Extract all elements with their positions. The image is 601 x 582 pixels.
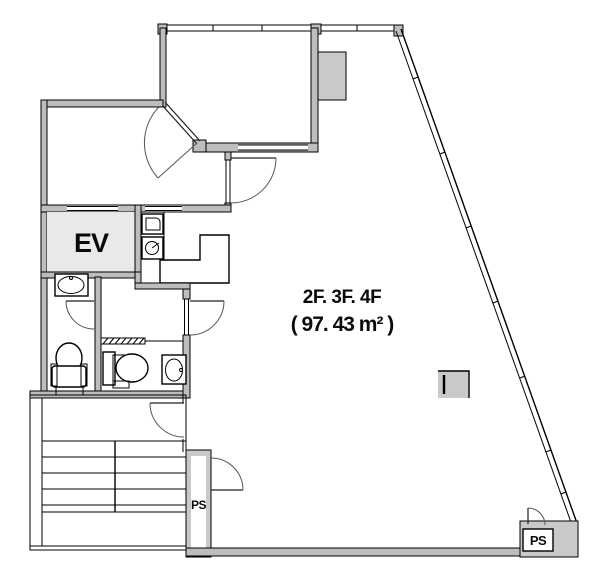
stair-door bbox=[150, 403, 184, 437]
top-window-wall bbox=[158, 24, 403, 36]
floor-plan: EV bbox=[0, 0, 601, 582]
floor-plan-svg: EV bbox=[0, 0, 601, 582]
hand-sink bbox=[162, 355, 186, 384]
pipe-shaft-1: PS bbox=[186, 450, 243, 557]
main-room-label: 2F. 3F. 4F ( 97. 43 m² ) bbox=[291, 287, 394, 336]
wash-basin bbox=[55, 274, 88, 296]
interior-window-2 bbox=[145, 206, 182, 212]
utility-closet bbox=[142, 212, 164, 260]
pipe-space-2-label: PS bbox=[530, 533, 547, 548]
area-text: ( 97. 43 m² ) bbox=[291, 313, 394, 336]
sanitary-block bbox=[30, 274, 224, 398]
room-door bbox=[231, 158, 276, 203]
diagonal-wall bbox=[396, 29, 578, 528]
floors-text: 2F. 3F. 4F bbox=[303, 287, 381, 308]
vestibule-door bbox=[66, 301, 94, 329]
lower-wall-window bbox=[238, 145, 308, 151]
stair-treads bbox=[42, 441, 186, 512]
pipe-space-1-label: PS bbox=[191, 498, 207, 512]
stairwell bbox=[30, 395, 186, 550]
column bbox=[438, 371, 469, 398]
doorway-jamb-2 bbox=[185, 299, 189, 335]
bottom-wall bbox=[186, 548, 578, 556]
folding-partition bbox=[101, 338, 183, 344]
shaft-door-1 bbox=[211, 458, 243, 490]
toilet-1 bbox=[51, 343, 87, 395]
doorway-jamb bbox=[226, 160, 230, 203]
pipe-shaft-2: PS bbox=[520, 508, 578, 557]
middle-room-door bbox=[190, 301, 224, 335]
elevator-label: EV bbox=[74, 228, 109, 258]
toilet-2 bbox=[103, 352, 148, 388]
kitchen-counter bbox=[160, 235, 229, 283]
window-strip-1 bbox=[167, 25, 311, 31]
corner-door bbox=[144, 102, 200, 178]
interior-window-1 bbox=[67, 206, 118, 212]
duct-shaft bbox=[318, 52, 346, 100]
window-strip-2 bbox=[321, 25, 395, 31]
